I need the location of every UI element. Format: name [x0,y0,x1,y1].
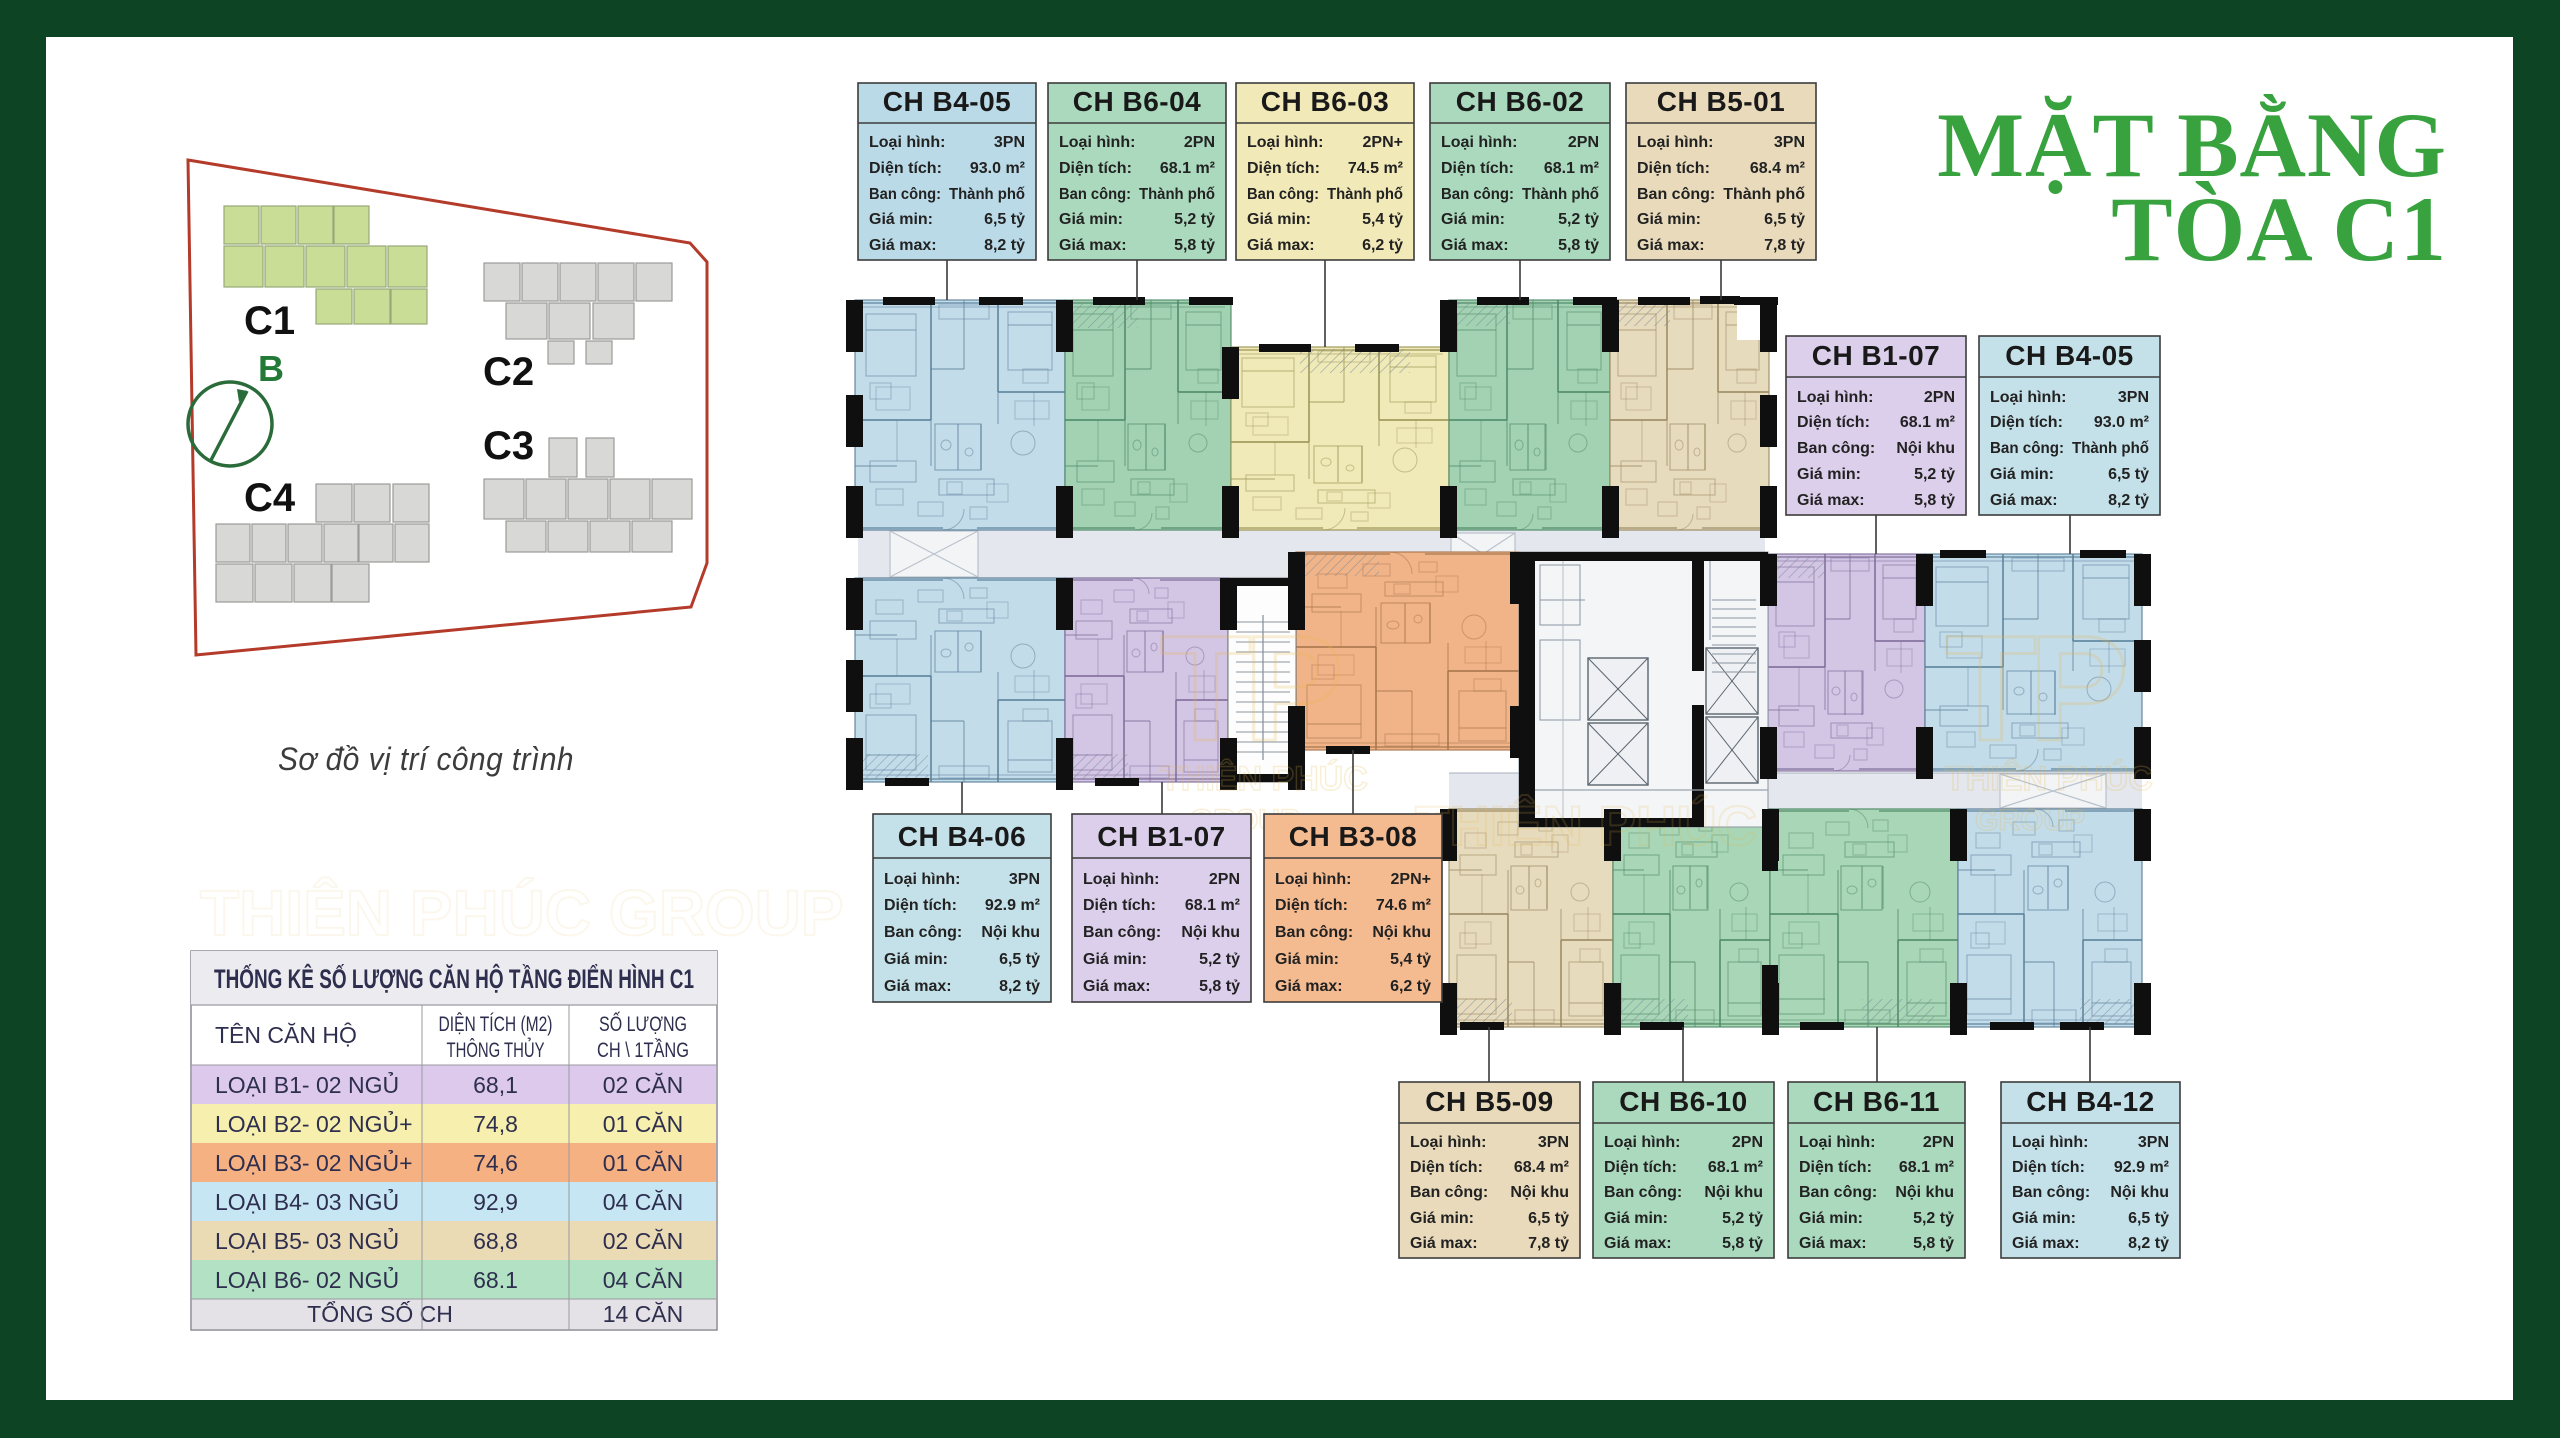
svg-text:C4: C4 [244,476,296,520]
svg-text:Ban công:: Ban công: [1059,186,1131,203]
svg-text:04 CĂN: 04 CĂN [603,1267,684,1293]
svg-text:6,5 tỷ: 6,5 tỷ [1528,1210,1569,1227]
svg-text:TP: TP [1160,604,1339,772]
svg-text:68.4 m²: 68.4 m² [1514,1159,1569,1176]
svg-text:Giá max:: Giá max: [1083,978,1151,995]
svg-text:74.5 m²: 74.5 m² [1348,160,1403,177]
svg-text:5,2 tỷ: 5,2 tỷ [1722,1210,1763,1227]
svg-text:Loại hình:: Loại hình: [1441,134,1517,151]
svg-text:Loại hình:: Loại hình: [1410,1134,1486,1151]
svg-text:3PN: 3PN [2138,1134,2169,1151]
svg-text:8,2 tỷ: 8,2 tỷ [999,978,1040,995]
svg-text:CH B4-05: CH B4-05 [883,86,1011,117]
svg-text:3PN: 3PN [994,134,1025,151]
svg-text:6,5 tỷ: 6,5 tỷ [1764,211,1805,228]
svg-text:8,2 tỷ: 8,2 tỷ [2128,1235,2169,1252]
svg-text:Diện tích:: Diện tích: [1797,414,1870,431]
svg-text:6,2 tỷ: 6,2 tỷ [1390,978,1431,995]
svg-text:LOẠI B3- 02 NGỦ+: LOẠI B3- 02 NGỦ+ [215,1148,413,1176]
svg-text:3PN: 3PN [1774,134,1805,151]
svg-text:5,8 tỷ: 5,8 tỷ [1199,978,1240,995]
svg-text:01 CĂN: 01 CĂN [603,1150,684,1176]
svg-text:CH B1-07: CH B1-07 [1812,340,1940,371]
svg-text:6,5 tỷ: 6,5 tỷ [984,211,1025,228]
svg-text:Thành phố: Thành phố [1139,186,1215,203]
svg-text:Ban công:: Ban công: [1637,186,1715,203]
svg-text:Loại hình:: Loại hình: [2012,1134,2088,1151]
svg-text:Ban công:: Ban công: [884,924,962,941]
svg-text:Diện tích:: Diện tích: [1247,160,1320,177]
svg-text:CH B6-11: CH B6-11 [1813,1086,1940,1117]
svg-text:3PN: 3PN [1538,1134,1569,1151]
svg-text:Giá min:: Giá min: [1247,211,1311,228]
svg-text:6,5 tỷ: 6,5 tỷ [2128,1210,2169,1227]
svg-text:CH B6-10: CH B6-10 [1619,1086,1747,1117]
svg-text:Giá min:: Giá min: [1410,1210,1474,1227]
svg-text:8,2 tỷ: 8,2 tỷ [984,237,1025,254]
svg-text:Thành phố: Thành phố [1723,186,1805,203]
svg-text:Ban công:: Ban công: [1797,440,1875,457]
svg-text:2PN+: 2PN+ [1363,134,1403,151]
svg-text:6,2 tỷ: 6,2 tỷ [1362,237,1403,254]
svg-text:2PN+: 2PN+ [1391,871,1431,888]
svg-text:Thành phố: Thành phố [2072,440,2149,457]
svg-text:3PN: 3PN [2118,389,2149,406]
svg-text:Giá max:: Giá max: [2012,1235,2080,1252]
svg-text:Ban công:: Ban công: [2012,1184,2090,1201]
svg-text:68.1 m²: 68.1 m² [1900,414,1955,431]
svg-text:Diện tích:: Diện tích: [1441,160,1514,177]
svg-text:5,2 tỷ: 5,2 tỷ [1174,211,1215,228]
svg-text:04 CĂN: 04 CĂN [603,1189,684,1215]
svg-text:02 CĂN: 02 CĂN [603,1072,684,1098]
svg-text:68,1: 68,1 [473,1072,518,1098]
svg-text:C1: C1 [244,299,295,343]
svg-text:LOẠI B2- 02 NGỦ+: LOẠI B2- 02 NGỦ+ [215,1109,413,1137]
svg-text:01 CĂN: 01 CĂN [603,1111,684,1137]
svg-text:5,8 tỷ: 5,8 tỷ [1914,492,1955,509]
svg-text:Giá max:: Giá max: [1990,492,2058,509]
svg-text:Loại hình:: Loại hình: [1604,1134,1680,1151]
svg-text:Giá max:: Giá max: [1637,237,1705,254]
svg-text:Loại hình:: Loại hình: [1637,134,1713,151]
svg-text:Nội khu: Nội khu [1895,1184,1954,1201]
svg-text:2PN: 2PN [1732,1134,1763,1151]
svg-text:SỐ LƯỢNG: SỐ LƯỢNG [599,1012,687,1036]
svg-text:Ban công:: Ban công: [1990,440,2064,457]
svg-text:5,4 tỷ: 5,4 tỷ [1362,211,1403,228]
svg-text:Diện tích:: Diện tích: [2012,1159,2085,1176]
svg-text:Giá min:: Giá min: [1637,211,1701,228]
svg-text:Giá max:: Giá max: [1797,492,1865,509]
svg-text:Nội khu: Nội khu [1510,1184,1569,1201]
svg-text:Ban công:: Ban công: [869,186,941,203]
svg-text:TỔNG SỐ CH: TỔNG SỐ CH [307,1300,453,1327]
svg-text:Giá min:: Giá min: [1990,466,2054,483]
svg-text:CH B4-05: CH B4-05 [2005,340,2133,371]
svg-text:Loại hình:: Loại hình: [884,871,960,888]
svg-text:Giá min:: Giá min: [1083,951,1147,968]
svg-text:LOẠI B6- 02 NGỦ: LOẠI B6- 02 NGỦ [215,1265,399,1293]
svg-text:GROUP: GROUP [1975,804,2085,837]
svg-text:Ban công:: Ban công: [1410,1184,1488,1201]
svg-text:2PN: 2PN [1568,134,1599,151]
svg-text:Giá min:: Giá min: [1275,951,1339,968]
svg-text:74,8: 74,8 [473,1111,518,1137]
svg-text:Giá max:: Giá max: [1275,978,1343,995]
svg-text:CH \ 1TẦNG: CH \ 1TẦNG [597,1039,689,1062]
svg-text:74,6: 74,6 [473,1150,518,1176]
svg-text:Giá max:: Giá max: [1799,1235,1867,1252]
svg-text:LOẠI B4- 03 NGỦ: LOẠI B4- 03 NGỦ [215,1187,399,1215]
svg-text:Ban công:: Ban công: [1083,924,1161,941]
svg-text:93.0 m²: 93.0 m² [970,160,1025,177]
svg-text:5,4 tỷ: 5,4 tỷ [1390,951,1431,968]
svg-text:THIÊN PHÚC GROUP: THIÊN PHÚC GROUP [200,876,844,949]
svg-text:Diện tích:: Diện tích: [1799,1159,1872,1176]
svg-text:68.1 m²: 68.1 m² [1708,1159,1763,1176]
svg-text:Ban công:: Ban công: [1799,1184,1877,1201]
svg-text:CH B4-06: CH B4-06 [898,821,1026,852]
svg-text:8,2 tỷ: 8,2 tỷ [2108,492,2149,509]
svg-text:Nội khu: Nội khu [2110,1184,2169,1201]
svg-text:Diện tích:: Diện tích: [1990,414,2063,431]
svg-text:CH B1-07: CH B1-07 [1097,821,1225,852]
svg-text:14 CĂN: 14 CĂN [603,1301,684,1327]
svg-text:TÊN CĂN HỘ: TÊN CĂN HỘ [215,1021,357,1048]
svg-text:Loại hình:: Loại hình: [1083,871,1159,888]
svg-text:TP: TP [1945,604,2124,772]
svg-text:93.0 m²: 93.0 m² [2094,414,2149,431]
svg-text:5,8 tỷ: 5,8 tỷ [1558,237,1599,254]
svg-text:2PN: 2PN [1923,1134,1954,1151]
svg-text:Loại hình:: Loại hình: [1799,1134,1875,1151]
svg-text:Nội khu: Nội khu [1181,924,1240,941]
svg-text:Nội khu: Nội khu [1896,440,1955,457]
svg-text:Thành phố: Thành phố [1327,186,1403,203]
svg-text:DIỆN TÍCH (M2): DIỆN TÍCH (M2) [439,1013,553,1036]
svg-text:2PN: 2PN [1924,389,1955,406]
svg-text:CH B3-08: CH B3-08 [1289,821,1417,852]
svg-text:THỐNG KÊ SỐ LƯỢNG CĂN HỘ TẦNG: THỐNG KÊ SỐ LƯỢNG CĂN HỘ TẦNG ĐIỂN HÌNH … [214,962,694,994]
svg-text:6,5 tỷ: 6,5 tỷ [2108,466,2149,483]
svg-text:Diện tích:: Diện tích: [1275,897,1348,914]
svg-text:5,2 tỷ: 5,2 tỷ [1914,466,1955,483]
svg-text:Loại hình:: Loại hình: [1990,389,2066,406]
svg-text:68.4 m²: 68.4 m² [1750,160,1805,177]
svg-text:Loại hình:: Loại hình: [1275,871,1351,888]
svg-text:Thành phố: Thành phố [1522,186,1599,203]
svg-text:5,2 tỷ: 5,2 tỷ [1199,951,1240,968]
svg-text:CH B4-12: CH B4-12 [2026,1086,2154,1117]
svg-text:Giá max:: Giá max: [1410,1235,1478,1252]
svg-text:Diện tích:: Diện tích: [1637,160,1710,177]
svg-text:Loại hình:: Loại hình: [1059,134,1135,151]
svg-text:68.1: 68.1 [473,1267,518,1293]
svg-text:6,5 tỷ: 6,5 tỷ [999,951,1040,968]
svg-text:Diện tích:: Diện tích: [1604,1159,1677,1176]
svg-text:2PN: 2PN [1209,871,1240,888]
svg-text:CH B5-01: CH B5-01 [1657,86,1785,117]
svg-text:Giá max:: Giá max: [1059,237,1127,254]
svg-text:CH B6-02: CH B6-02 [1456,86,1584,117]
svg-text:Giá max:: Giá max: [1247,237,1315,254]
svg-text:C2: C2 [483,350,534,394]
svg-text:THIÊN PHÚC: THIÊN PHÚC [1415,794,1757,857]
svg-text:CH B5-09: CH B5-09 [1425,1086,1553,1117]
svg-text:CH B6-03: CH B6-03 [1261,86,1389,117]
svg-text:Giá min:: Giá min: [2012,1210,2076,1227]
svg-text:Nội khu: Nội khu [1704,1184,1763,1201]
svg-text:Loại hình:: Loại hình: [869,134,945,151]
svg-text:Ban công:: Ban công: [1275,924,1353,941]
svg-text:Nội khu: Nội khu [981,924,1040,941]
svg-text:Diện tích:: Diện tích: [1059,160,1132,177]
svg-text:Loại hình:: Loại hình: [1247,134,1323,151]
svg-text:Diện tích:: Diện tích: [1410,1159,1483,1176]
svg-text:7,8 tỷ: 7,8 tỷ [1528,1235,1569,1252]
svg-text:Nội khu: Nội khu [1372,924,1431,941]
svg-text:Giá max:: Giá max: [884,978,952,995]
svg-text:Diện tích:: Diện tích: [884,897,957,914]
svg-text:Ban công:: Ban công: [1441,186,1514,203]
svg-text:92,9: 92,9 [473,1189,518,1215]
svg-text:Sơ đồ vị trí công trình: Sơ đồ vị trí công trình [278,741,574,777]
svg-text:7,8 tỷ: 7,8 tỷ [1764,237,1805,254]
svg-text:THIÊN PHÚC: THIÊN PHÚC [1160,760,1368,798]
svg-text:B: B [258,348,284,389]
svg-text:74.6 m²: 74.6 m² [1376,897,1431,914]
svg-text:Ban công:: Ban công: [1247,186,1319,203]
svg-text:Giá min:: Giá min: [1799,1210,1863,1227]
svg-text:THÔNG THỦY: THÔNG THỦY [447,1038,545,1062]
svg-text:5,8 tỷ: 5,8 tỷ [1913,1235,1954,1252]
svg-text:92.9 m²: 92.9 m² [985,897,1040,914]
svg-text:Giá min:: Giá min: [1604,1210,1668,1227]
svg-text:LOẠI B5- 03 NGỦ: LOẠI B5- 03 NGỦ [215,1226,399,1254]
svg-text:C3: C3 [483,424,534,468]
svg-text:Diện tích:: Diện tích: [869,160,942,177]
svg-text:CH B6-04: CH B6-04 [1073,86,1201,117]
svg-text:68.1 m²: 68.1 m² [1899,1159,1954,1176]
svg-text:LOẠI B1- 02 NGỦ: LOẠI B1- 02 NGỦ [215,1070,399,1098]
svg-text:Giá min:: Giá min: [1797,466,1861,483]
svg-text:Giá min:: Giá min: [1441,211,1505,228]
svg-text:68.1 m²: 68.1 m² [1544,160,1599,177]
svg-text:68.1 m²: 68.1 m² [1160,160,1215,177]
svg-text:5,2 tỷ: 5,2 tỷ [1913,1210,1954,1227]
svg-text:THIÊN PHÚC: THIÊN PHÚC [1945,760,2153,798]
svg-text:Loại hình:: Loại hình: [1797,389,1873,406]
svg-text:Diện tích:: Diện tích: [1083,897,1156,914]
svg-text:Giá min:: Giá min: [869,211,933,228]
svg-text:92.9 m²: 92.9 m² [2114,1159,2169,1176]
svg-text:3PN: 3PN [1009,871,1040,888]
svg-text:2PN: 2PN [1184,134,1215,151]
svg-text:TÒA C1: TÒA C1 [2111,178,2447,280]
svg-text:68.1 m²: 68.1 m² [1185,897,1240,914]
svg-text:Giá max:: Giá max: [1441,237,1509,254]
svg-text:Giá max:: Giá max: [1604,1235,1672,1252]
svg-text:Ban công:: Ban công: [1604,1184,1682,1201]
svg-text:Giá min:: Giá min: [1059,211,1123,228]
svg-text:5,8 tỷ: 5,8 tỷ [1722,1235,1763,1252]
svg-text:Thành phố: Thành phố [949,186,1025,203]
svg-text:5,2 tỷ: 5,2 tỷ [1558,211,1599,228]
svg-text:68,8: 68,8 [473,1228,518,1254]
svg-text:02 CĂN: 02 CĂN [603,1228,684,1254]
svg-text:Giá max:: Giá max: [869,237,937,254]
svg-text:Giá min:: Giá min: [884,951,948,968]
svg-text:5,8 tỷ: 5,8 tỷ [1174,237,1215,254]
